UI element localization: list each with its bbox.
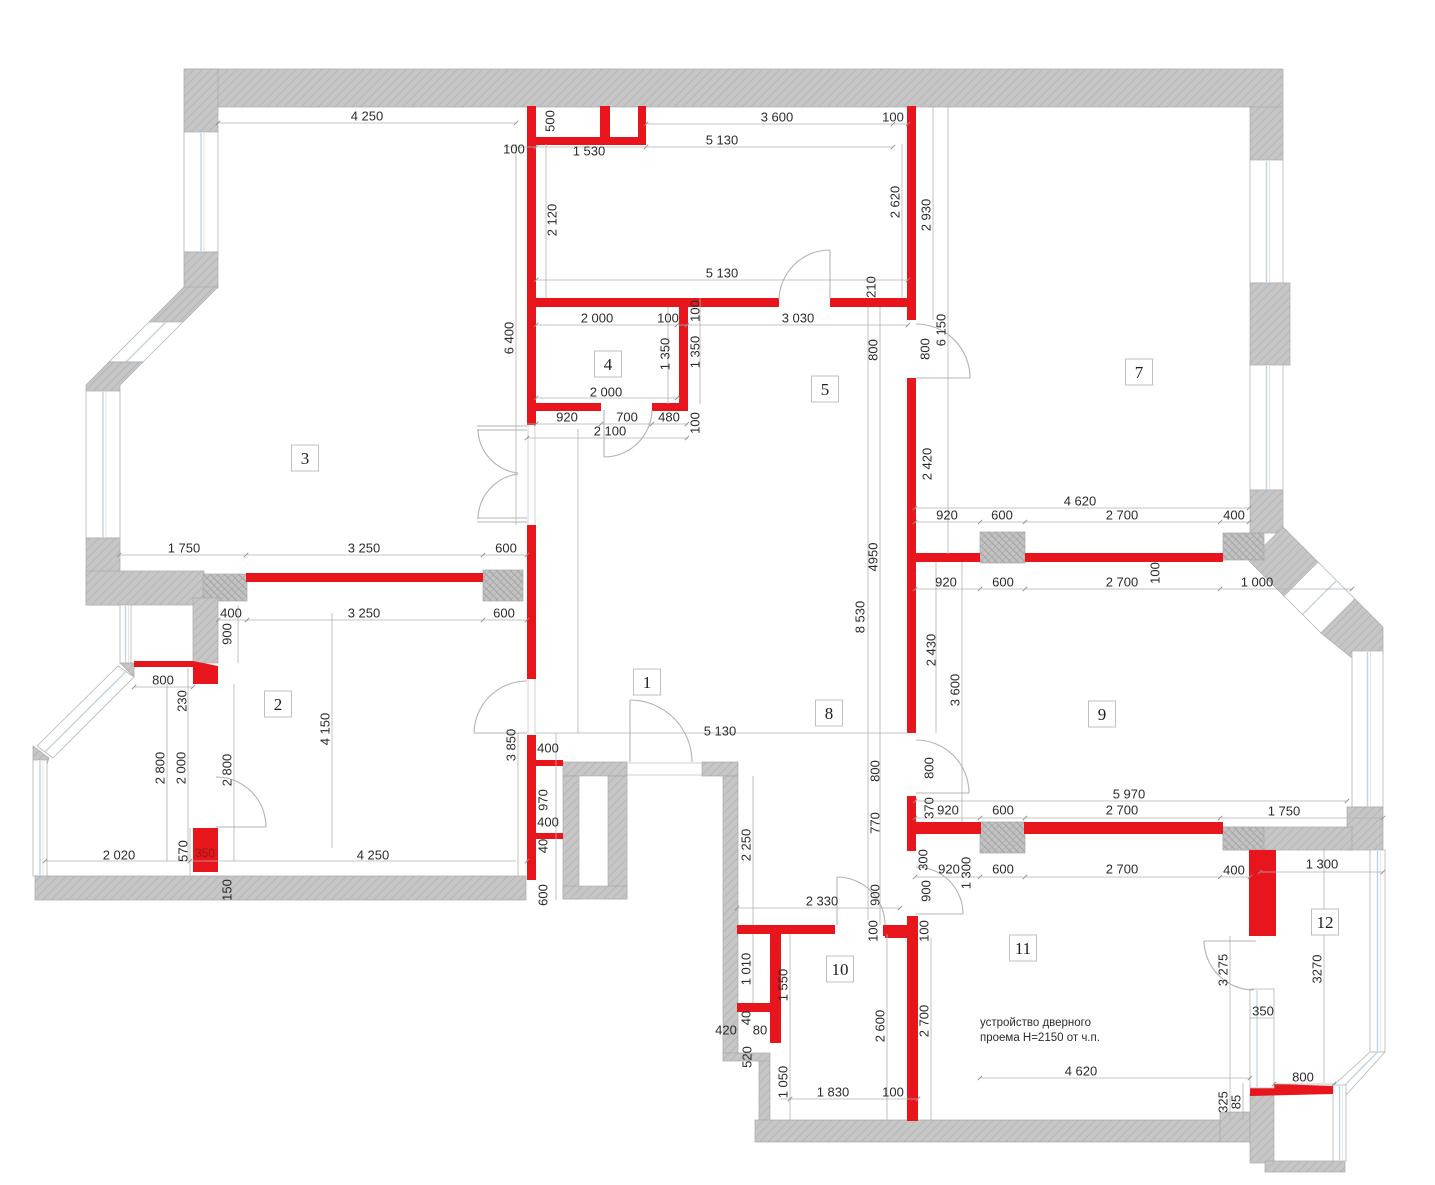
- svg-text:100: 100: [688, 412, 703, 434]
- svg-text:370: 370: [922, 797, 937, 819]
- svg-text:6 400: 6 400: [502, 322, 517, 355]
- svg-text:2 420: 2 420: [920, 448, 935, 481]
- svg-text:3 250: 3 250: [348, 541, 381, 556]
- svg-text:920: 920: [935, 575, 957, 590]
- svg-text:970: 970: [536, 789, 551, 811]
- svg-text:4: 4: [604, 355, 613, 374]
- svg-text:100: 100: [917, 920, 932, 942]
- svg-text:3 600: 3 600: [761, 110, 794, 125]
- svg-text:920: 920: [938, 862, 960, 877]
- svg-text:1: 1: [643, 673, 652, 692]
- svg-text:1 010: 1 010: [739, 953, 754, 986]
- svg-text:700: 700: [616, 410, 638, 425]
- svg-text:400: 400: [220, 606, 242, 621]
- svg-text:800: 800: [868, 760, 883, 782]
- svg-text:8 530: 8 530: [853, 601, 868, 634]
- svg-text:40: 40: [739, 1011, 754, 1025]
- svg-text:4950: 4950: [866, 543, 881, 572]
- svg-text:920: 920: [556, 410, 578, 425]
- svg-text:5: 5: [821, 380, 830, 399]
- svg-text:5 130: 5 130: [704, 724, 737, 739]
- svg-text:800: 800: [922, 757, 937, 779]
- svg-text:6 150: 6 150: [934, 314, 949, 347]
- svg-text:2 600: 2 600: [873, 1010, 888, 1043]
- svg-text:600: 600: [992, 862, 1014, 877]
- svg-text:3 275: 3 275: [1216, 954, 1231, 987]
- svg-text:3 250: 3 250: [348, 606, 381, 621]
- svg-text:420: 420: [715, 1023, 737, 1038]
- svg-text:350: 350: [195, 846, 215, 860]
- svg-text:520: 520: [740, 1046, 755, 1068]
- svg-text:210: 210: [864, 276, 879, 298]
- svg-text:800: 800: [918, 338, 933, 360]
- svg-text:800: 800: [866, 339, 881, 361]
- svg-text:2: 2: [274, 695, 283, 714]
- svg-text:2 620: 2 620: [888, 186, 903, 219]
- svg-text:100: 100: [882, 1085, 904, 1100]
- svg-text:2 000: 2 000: [581, 311, 614, 326]
- svg-text:920: 920: [937, 803, 959, 818]
- svg-text:1 530: 1 530: [573, 144, 606, 159]
- svg-text:8: 8: [825, 704, 834, 723]
- svg-text:4 150: 4 150: [318, 713, 333, 746]
- svg-text:600: 600: [992, 803, 1014, 818]
- svg-text:1 350: 1 350: [658, 338, 673, 371]
- svg-text:800: 800: [1292, 1070, 1314, 1085]
- svg-text:100: 100: [657, 311, 679, 326]
- svg-text:2 000: 2 000: [174, 752, 189, 785]
- svg-text:1 300: 1 300: [1306, 857, 1339, 872]
- svg-text:900: 900: [919, 880, 934, 902]
- svg-text:2 800: 2 800: [220, 754, 235, 787]
- svg-text:480: 480: [658, 410, 680, 425]
- svg-text:4 620: 4 620: [1065, 1064, 1098, 1079]
- svg-text:600: 600: [495, 541, 517, 556]
- svg-text:2 250: 2 250: [739, 829, 754, 862]
- svg-text:100: 100: [688, 300, 703, 322]
- svg-text:40: 40: [536, 839, 551, 853]
- svg-text:1 550: 1 550: [776, 969, 791, 1002]
- svg-text:400: 400: [1223, 508, 1245, 523]
- svg-text:4 620: 4 620: [1064, 494, 1097, 509]
- svg-text:устройство дверного: устройство дверного: [980, 1017, 1091, 1029]
- svg-text:300: 300: [916, 849, 931, 871]
- svg-text:проема Н=2150 от ч.п.: проема Н=2150 от ч.п.: [980, 1032, 1100, 1044]
- svg-text:5 130: 5 130: [706, 133, 739, 148]
- svg-text:920: 920: [936, 508, 958, 523]
- svg-text:4 250: 4 250: [351, 109, 384, 124]
- svg-text:2 000: 2 000: [590, 385, 623, 400]
- svg-text:2 330: 2 330: [806, 894, 839, 909]
- svg-text:600: 600: [536, 884, 551, 906]
- svg-text:400: 400: [537, 815, 559, 830]
- svg-text:11: 11: [1015, 939, 1031, 958]
- svg-text:600: 600: [493, 606, 515, 621]
- svg-text:4 250: 4 250: [357, 848, 390, 863]
- svg-text:2 020: 2 020: [103, 848, 136, 863]
- svg-text:100: 100: [866, 920, 881, 942]
- svg-text:100: 100: [503, 142, 525, 157]
- svg-text:100: 100: [1148, 562, 1163, 584]
- svg-text:1 750: 1 750: [1268, 804, 1301, 819]
- svg-text:3270: 3270: [1310, 955, 1325, 984]
- svg-text:400: 400: [537, 741, 559, 756]
- svg-text:7: 7: [1135, 363, 1144, 382]
- svg-text:1 050: 1 050: [776, 1066, 791, 1099]
- svg-text:900: 900: [868, 884, 883, 906]
- svg-text:5 130: 5 130: [706, 266, 739, 281]
- svg-text:2 120: 2 120: [545, 204, 560, 237]
- svg-text:600: 600: [991, 508, 1013, 523]
- svg-text:9: 9: [1098, 705, 1107, 724]
- svg-text:2 700: 2 700: [917, 1005, 932, 1038]
- svg-text:2 700: 2 700: [1106, 803, 1139, 818]
- svg-text:5 970: 5 970: [1113, 787, 1146, 802]
- svg-text:3 600: 3 600: [948, 674, 963, 707]
- svg-text:600: 600: [992, 575, 1014, 590]
- svg-text:100: 100: [882, 110, 904, 125]
- svg-text:800: 800: [152, 673, 174, 688]
- svg-text:2 100: 2 100: [594, 424, 627, 439]
- svg-text:400: 400: [1223, 863, 1245, 878]
- svg-text:570: 570: [176, 840, 191, 862]
- svg-text:900: 900: [220, 623, 235, 645]
- svg-text:2 430: 2 430: [924, 634, 939, 667]
- svg-text:80: 80: [753, 1023, 767, 1038]
- svg-text:2 700: 2 700: [1106, 575, 1139, 590]
- svg-text:10: 10: [832, 960, 849, 979]
- svg-text:2 800: 2 800: [153, 752, 168, 785]
- svg-text:1 000: 1 000: [1241, 575, 1274, 590]
- svg-text:3 030: 3 030: [782, 311, 815, 326]
- svg-text:500: 500: [543, 110, 558, 132]
- svg-text:1 350: 1 350: [688, 336, 703, 369]
- svg-text:2 930: 2 930: [919, 199, 934, 232]
- svg-text:3 850: 3 850: [504, 729, 519, 762]
- svg-text:150: 150: [220, 879, 235, 901]
- svg-text:770: 770: [868, 812, 883, 834]
- svg-text:85: 85: [1229, 1095, 1244, 1109]
- svg-text:1 830: 1 830: [817, 1085, 850, 1100]
- svg-text:350: 350: [1252, 1004, 1274, 1019]
- svg-text:1 750: 1 750: [168, 541, 201, 556]
- svg-text:2 700: 2 700: [1106, 862, 1139, 877]
- svg-text:1 300: 1 300: [959, 857, 974, 890]
- svg-text:12: 12: [1317, 913, 1334, 932]
- svg-text:230: 230: [175, 690, 190, 712]
- svg-text:3: 3: [301, 449, 310, 468]
- svg-text:2 700: 2 700: [1106, 508, 1139, 523]
